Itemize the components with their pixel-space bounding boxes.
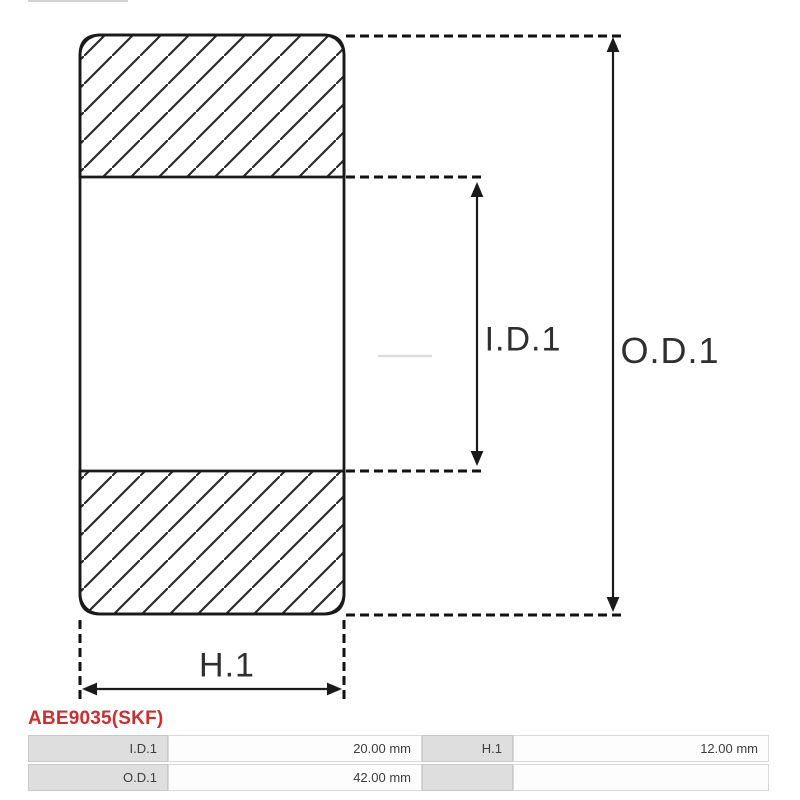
spec-label-cell-empty — [422, 764, 513, 791]
spec-value-cell-empty — [513, 764, 769, 791]
spec-table: I.D.1 20.00 mm H.1 12.00 mm O.D.1 42.00 … — [28, 735, 769, 791]
bearing-spec-page: I.D.1 O.D.1 H.1 ABE9035(SKF) I.D.1 20.00… — [0, 0, 800, 800]
od-dimension-label: O.D.1 — [620, 330, 719, 372]
h-dimension-label: H.1 — [199, 647, 255, 686]
spec-label-cell-id: I.D.1 — [28, 735, 168, 762]
spec-label-cell-h: H.1 — [422, 735, 513, 762]
spec-label-cell-od: O.D.1 — [28, 764, 168, 791]
id-dimension-arrow — [471, 182, 484, 466]
spec-value-cell-id: 20.00 mm — [168, 735, 422, 762]
part-code: ABE9035(SKF) — [28, 708, 163, 730]
spec-value-cell-od: 42.00 mm — [168, 764, 422, 791]
bearing-top-hatch-section — [80, 35, 344, 177]
id-dimension-label: I.D.1 — [485, 321, 562, 360]
bearing-bottom-hatch-section — [80, 471, 344, 614]
spec-value-cell-h: 12.00 mm — [513, 735, 769, 762]
od-dimension-arrow — [607, 37, 620, 612]
